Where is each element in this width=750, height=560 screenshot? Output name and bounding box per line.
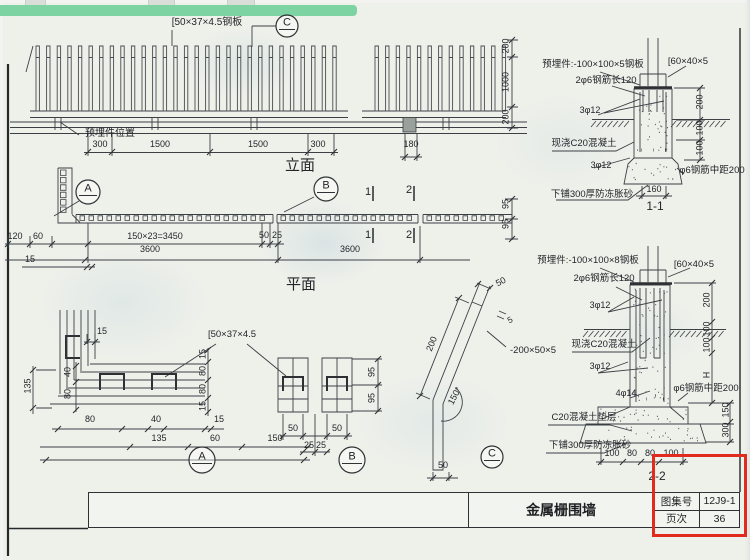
- drawing-linework: [5, 26, 734, 481]
- svg-text:C: C: [488, 448, 496, 460]
- fence-post-block: [403, 118, 416, 133]
- detail-bubble-b: B: [339, 447, 365, 473]
- svg-text:C: C: [283, 17, 291, 29]
- svg-text:B: B: [348, 451, 355, 463]
- highlight-box: [652, 454, 747, 537]
- detail-bubble-b-plan: B: [314, 177, 338, 201]
- detail-bubble-c: C: [481, 446, 503, 468]
- drawing-canvas: CABABC: [0, 0, 750, 560]
- title-block-empty-cell: [89, 493, 469, 527]
- detail-bubble-a: A: [189, 447, 215, 473]
- drawing-sheet: CABABC [50×37×4.5钢板预埋件位置3001500150030018…: [0, 0, 750, 560]
- svg-text:A: A: [84, 183, 92, 195]
- detail-bubble-a-plan: A: [76, 180, 100, 204]
- generated-linework: [5, 37, 733, 481]
- svg-text:A: A: [198, 451, 206, 463]
- title-block: 金属栅围墙 图集号 12J9-1 页次 36: [88, 492, 740, 528]
- svg-text:B: B: [322, 180, 329, 192]
- sheet-title: 金属栅围墙: [469, 493, 654, 527]
- detail-bubble-c-top: C: [276, 15, 298, 37]
